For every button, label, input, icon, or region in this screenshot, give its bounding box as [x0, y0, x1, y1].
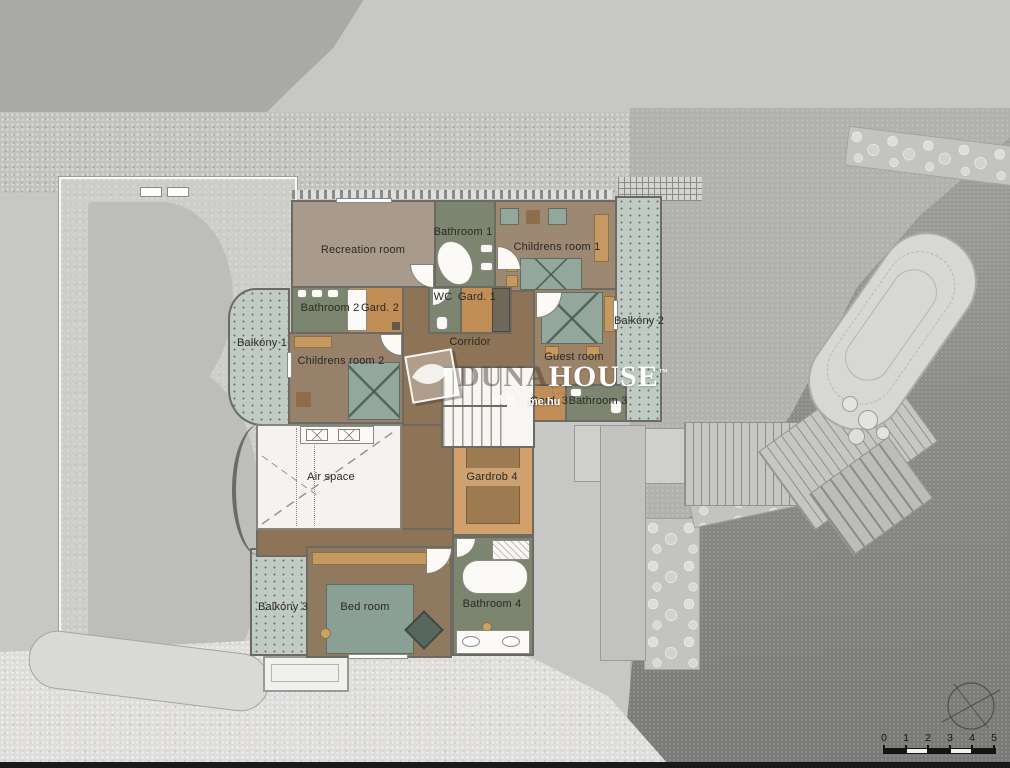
sink-symbol-b2a	[311, 289, 323, 298]
room-label-recreation: Recreation room	[321, 244, 405, 256]
shrub-cluster-3	[876, 426, 890, 440]
room-label-corridor: Corridor	[449, 336, 490, 348]
sink-oval-b4b	[502, 636, 520, 647]
toilet-symbol-wc	[436, 316, 448, 330]
shelf-symbol-c2	[294, 336, 332, 348]
room-label-balkony3: Balkóny 3	[258, 601, 308, 613]
desk-symbol-c1	[594, 214, 609, 262]
floor-plan-site-drawing: Recreation room Bathroom 1 Childrens roo…	[0, 0, 1010, 768]
terrace-step-small	[574, 425, 601, 482]
room-label-bathroom1: Bathroom 1	[434, 226, 493, 238]
room-label-airspace: Air space	[307, 471, 355, 483]
shrub-cluster-1	[842, 396, 858, 412]
window-childrens2-left	[287, 352, 292, 378]
room-balkony1	[228, 288, 290, 426]
sink-symbol-b1a	[480, 244, 493, 253]
cabinet-symbol-g2	[392, 322, 400, 330]
watermark-brand-main: HOUSE	[549, 360, 659, 393]
watermark: DUNAHOUSE™ ME me.hu	[400, 348, 620, 418]
roof-hatch-1	[140, 187, 162, 197]
shrub-cluster-2	[858, 410, 878, 430]
room-label-gard1: Gard. 1	[458, 291, 496, 303]
scale-tick-0	[883, 745, 885, 754]
room-label-bathroom2: Bathroom 2	[301, 302, 360, 314]
roof-hatch-2	[167, 187, 189, 197]
airspace-dotted-line-1	[296, 428, 297, 526]
watermark-sub-text: ME	[492, 392, 520, 407]
room-label-balkony1: Balkóny 1	[237, 337, 287, 349]
room-label-childrens1: Childrens room 1	[514, 241, 601, 253]
cabinet-symbol-c1	[526, 210, 540, 224]
sink-oval-b4a	[462, 636, 480, 647]
scale-number-3: 3	[947, 732, 953, 744]
bathtub-symbol-b4	[462, 560, 528, 594]
scale-number-1: 1	[903, 732, 909, 744]
room-label-gardrob4: Gardrob 4	[461, 468, 522, 486]
scale-tick-2	[927, 745, 929, 754]
structure-inner-line	[271, 664, 339, 682]
room-label-wc: WC	[434, 291, 453, 303]
sink-symbol-b2b	[327, 289, 339, 298]
watermark-brand-left: DUNA	[458, 360, 549, 393]
bed-symbol-c2	[348, 362, 400, 420]
image-bottom-edge	[0, 762, 1010, 768]
scale-tick-4	[971, 745, 973, 754]
watermark-brand-text: DUNAHOUSE™	[458, 360, 669, 394]
watermark-url-text: me.hu	[528, 396, 560, 408]
scale-tick-3	[949, 745, 951, 754]
bed-symbol-c1	[520, 258, 582, 290]
sink-symbol-b1b	[480, 262, 493, 271]
pillow-symbol-c1b	[506, 275, 518, 287]
cabinet-symbol-c2	[296, 392, 311, 407]
window-recreation-top	[336, 198, 392, 203]
scale-number-5: 5	[991, 732, 997, 744]
stone-path-vertical	[644, 518, 700, 670]
rug-symbol-c1b	[548, 208, 567, 225]
vent-x-2	[338, 429, 360, 441]
scale-number-0: 0	[881, 732, 887, 744]
scale-number-4: 4	[969, 732, 975, 744]
room-label-childrens2: Childrens room 2	[298, 355, 385, 367]
terrace-wall-strip	[600, 425, 646, 661]
stool-symbol-bedroom	[320, 628, 331, 639]
window-bedroom-bottom	[348, 654, 408, 659]
scale-tick-5	[993, 745, 995, 754]
room-label-balkony2: Balkóny 2	[614, 315, 664, 327]
bed-symbol-bedroom	[326, 584, 414, 654]
north-compass-icon	[940, 678, 1004, 738]
watermark-tm-mark: ™	[659, 367, 669, 377]
scale-number-2: 2	[925, 732, 931, 744]
rug-symbol-c1a	[500, 208, 519, 225]
shower-symbol-b4	[492, 540, 530, 560]
scale-bar: 0 1 2 3 4 5	[876, 732, 1008, 760]
shrub-cluster-4	[848, 428, 865, 445]
room-label-gard2: Gard. 2	[361, 302, 399, 314]
room-label-bedroom: Bed room	[340, 601, 389, 613]
hill-slope-topleft	[0, 0, 1010, 120]
scale-tick-1	[905, 745, 907, 754]
vent-x-1	[306, 429, 328, 441]
toilet-symbol-b2	[297, 289, 307, 298]
room-label-bathroom4: Bathroom 4	[463, 598, 522, 610]
